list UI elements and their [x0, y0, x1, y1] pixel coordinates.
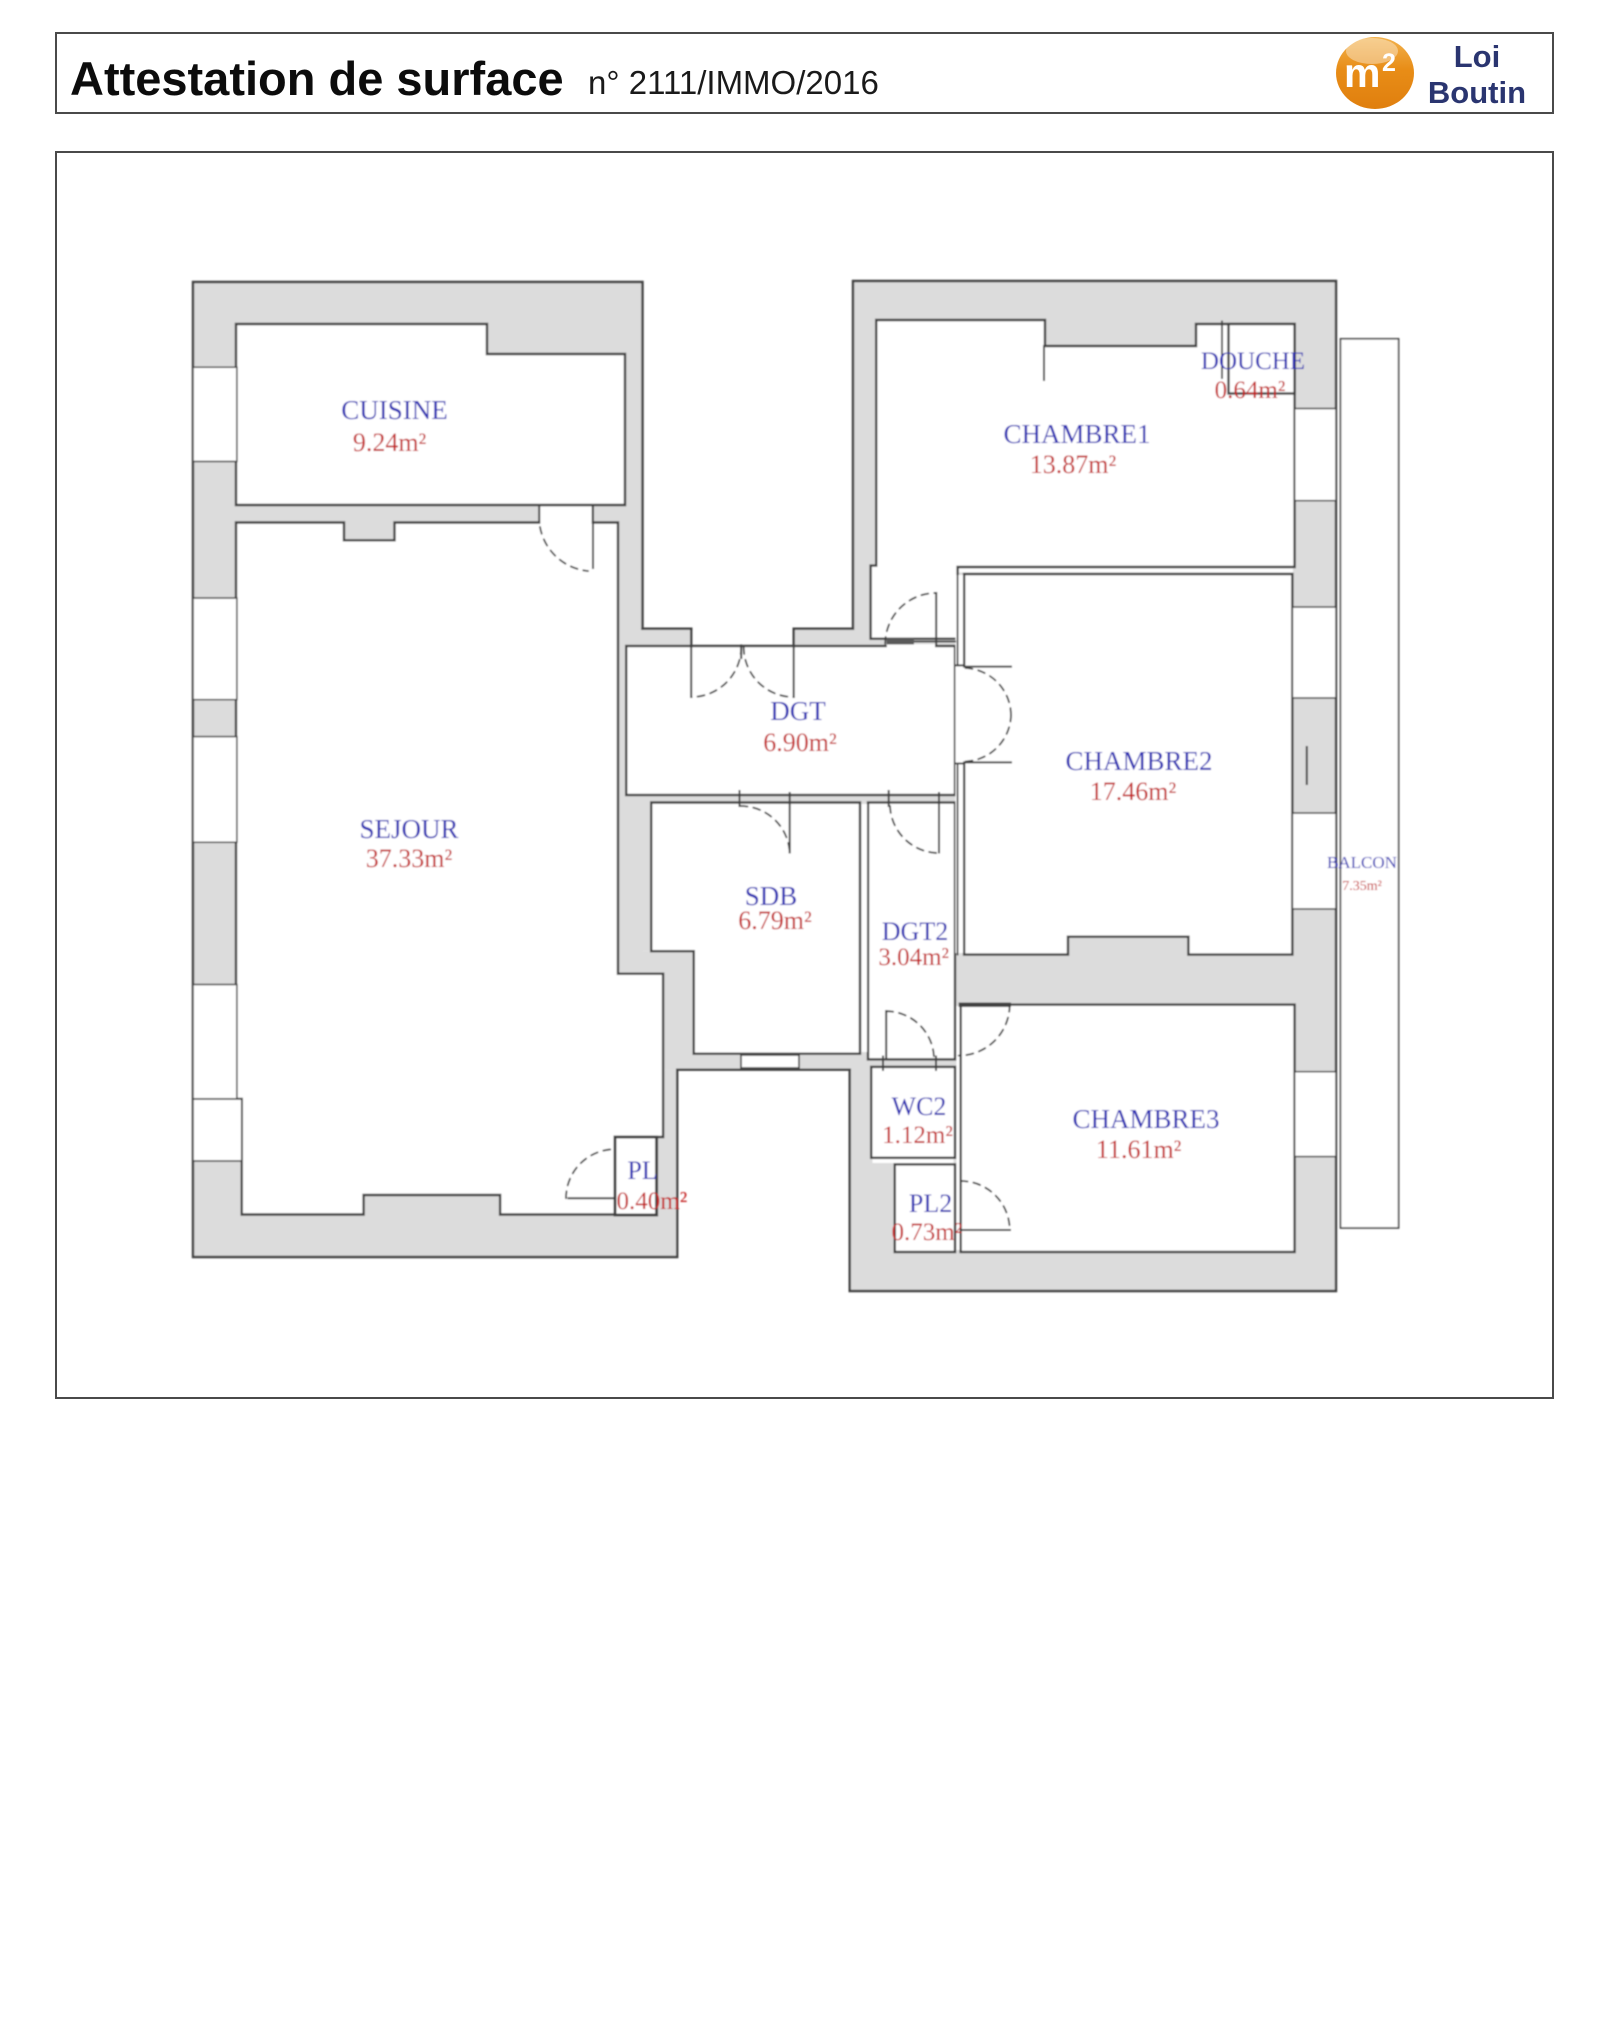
svg-text:CHAMBRE3: CHAMBRE3: [1072, 1104, 1219, 1134]
svg-text:0.40m²: 0.40m²: [617, 1188, 688, 1215]
svg-text:DGT2: DGT2: [882, 917, 948, 946]
svg-text:PL: PL: [627, 1156, 657, 1185]
svg-text:DOUCHE: DOUCHE: [1201, 348, 1305, 375]
svg-text:2: 2: [1382, 49, 1396, 77]
svg-text:0.64m²: 0.64m²: [1215, 377, 1286, 404]
svg-text:n° 2111/IMMO/2016: n° 2111/IMMO/2016: [588, 64, 879, 101]
svg-text:Attestation de surface: Attestation de surface: [70, 52, 564, 105]
svg-text:PL2: PL2: [909, 1189, 952, 1218]
svg-text:17.46m²: 17.46m²: [1090, 777, 1177, 806]
svg-text:1.12m²: 1.12m²: [882, 1122, 953, 1149]
svg-text:CHAMBRE1: CHAMBRE1: [1003, 419, 1150, 449]
svg-text:9.24m²: 9.24m²: [353, 428, 427, 457]
svg-text:SEJOUR: SEJOUR: [359, 814, 458, 844]
svg-text:37.33m²: 37.33m²: [366, 844, 453, 873]
svg-text:m: m: [1344, 50, 1380, 96]
svg-text:Loi: Loi: [1454, 39, 1501, 74]
svg-text:BALCON: BALCON: [1327, 853, 1397, 872]
svg-text:6.79m²: 6.79m²: [738, 906, 812, 935]
svg-text:CHAMBRE2: CHAMBRE2: [1065, 746, 1212, 776]
svg-text:7.35m²: 7.35m²: [1342, 879, 1382, 894]
svg-text:Boutin: Boutin: [1428, 75, 1526, 110]
svg-text:6.90m²: 6.90m²: [763, 728, 837, 757]
svg-text:13.87m²: 13.87m²: [1030, 450, 1117, 479]
svg-text:WC2: WC2: [892, 1092, 947, 1121]
svg-text:3.04m²: 3.04m²: [878, 944, 949, 971]
svg-text:0.73m²: 0.73m²: [892, 1219, 963, 1246]
svg-text:DGT: DGT: [770, 696, 826, 726]
svg-text:CUISINE: CUISINE: [341, 395, 448, 425]
svg-text:11.61m²: 11.61m²: [1096, 1135, 1182, 1164]
